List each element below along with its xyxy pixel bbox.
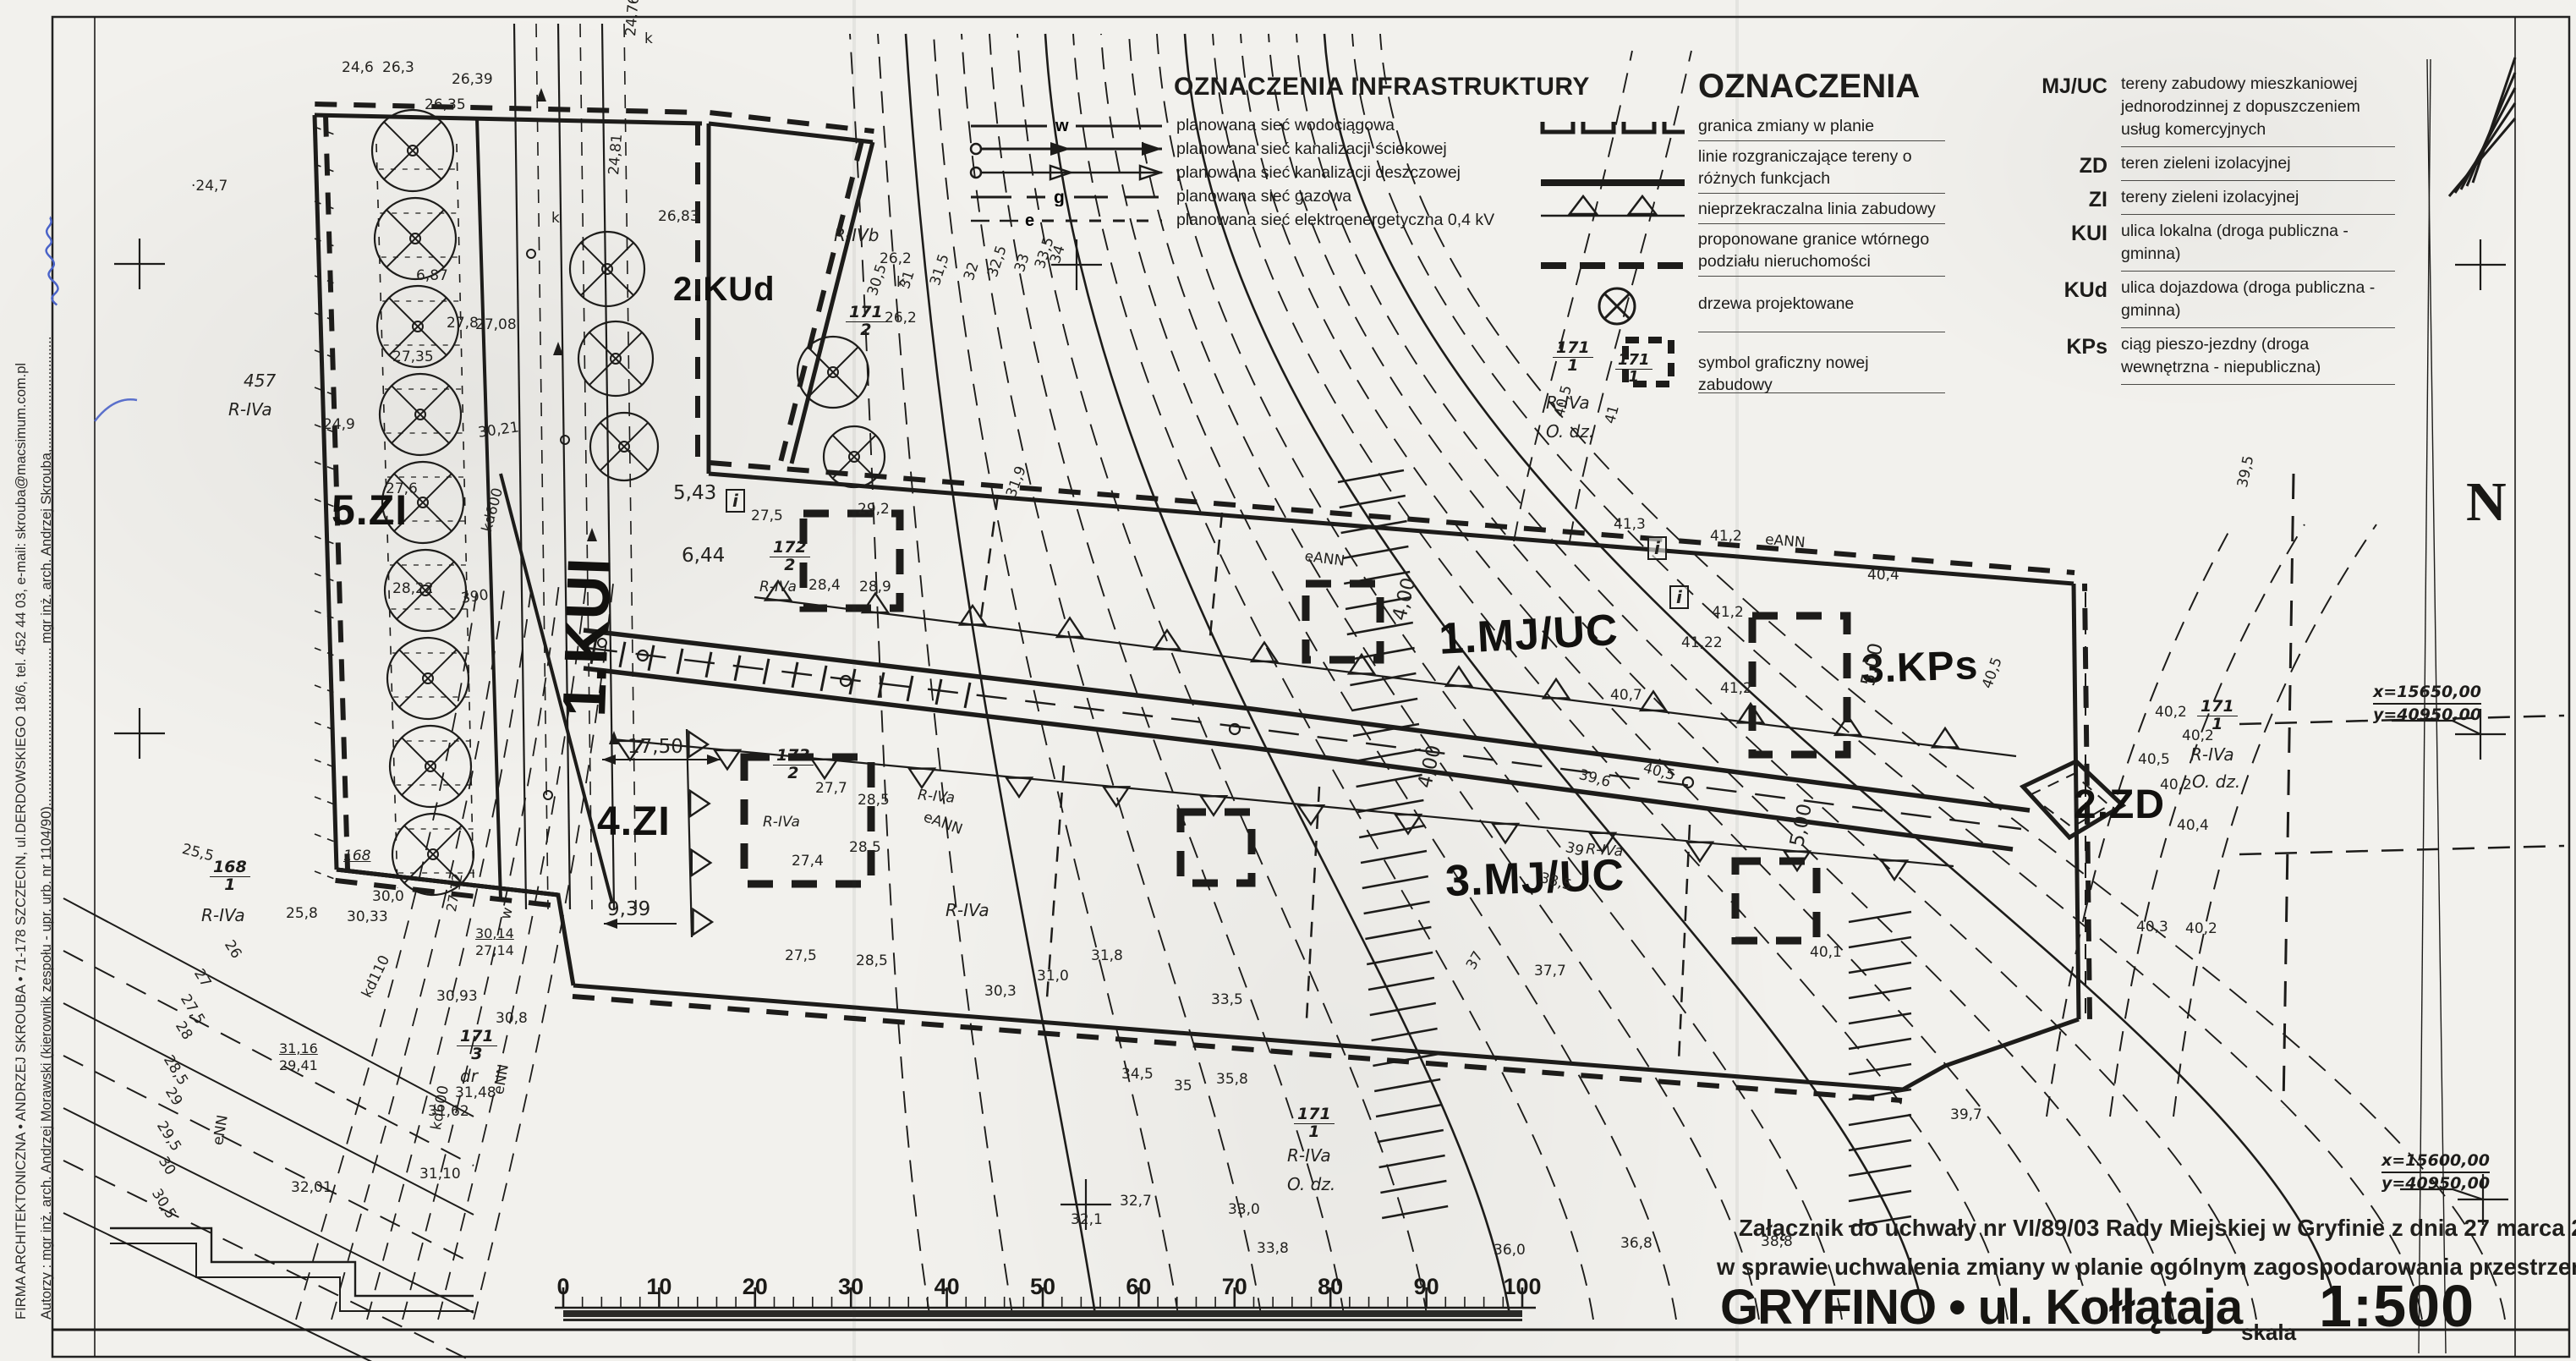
map-annotation: 28,4 — [808, 577, 841, 594]
map-annotation: 30,3 — [984, 983, 1017, 1000]
map-annotation: 40,5 — [2138, 751, 2170, 768]
legend-designations-title: OZNACZENIA — [1698, 68, 1954, 106]
map-annotation: k — [896, 274, 905, 291]
zone-code: KUI — [2026, 215, 2121, 272]
map-annotation: 33,8 — [1257, 1240, 1289, 1257]
legend-label: planowana sieć gazowa — [1168, 187, 1351, 206]
map-annotation: 32,01 — [291, 1179, 332, 1196]
map-annotation: 40,2 — [2160, 777, 2192, 793]
scale-bar-number: 30 — [838, 1274, 863, 1300]
map-annotation: 26,35 — [425, 96, 466, 113]
map-annotation: R-IVa — [228, 399, 272, 420]
map-annotation: 25,8 — [286, 905, 318, 922]
map-annotation: 24,81 — [606, 134, 626, 176]
map-annotation: 40,2 — [2185, 920, 2217, 937]
map-annotation: O. dz. — [2192, 771, 2240, 792]
map-annotation: 27,7 — [815, 780, 847, 797]
map-annotation: 33,0 — [1228, 1201, 1260, 1218]
scale-bar-number: 20 — [743, 1274, 768, 1300]
zone-code: ZD — [2026, 147, 2121, 181]
svg-text:w: w — [1055, 117, 1069, 135]
map-annotation: eANN — [1764, 531, 1806, 552]
map-annotation: 30,93 — [436, 988, 478, 1005]
map-annotation: 26,2 — [885, 310, 917, 327]
map-annotation: R-IVa — [917, 787, 955, 807]
secondary-division-line-icon — [1539, 259, 1687, 272]
map-annotation: R-IVa — [2190, 744, 2234, 765]
legend-label: symbol graficzny nowej zabudowy — [1698, 354, 1869, 394]
map-annotation: 29,41 — [279, 1057, 318, 1073]
map-annotation: k — [551, 210, 560, 227]
electric-line-icon: e — [969, 210, 1168, 230]
north-indicator: N — [2466, 470, 2507, 535]
scale-value: 1:500 — [2319, 1272, 2475, 1340]
legend-label: proponowane granice wtórnego podziału ni… — [1698, 230, 1929, 271]
map-annotation: R-IVa — [763, 814, 800, 831]
map-annotation: 35,8 — [1216, 1071, 1248, 1088]
scale-label: skala — [2241, 1320, 2296, 1346]
zone-desc: ulica dojazdowa (droga publiczna - gminn… — [2121, 272, 2395, 328]
zone-code-table: MJ/UC tereny zabudowy mieszkaniowej jedn… — [2026, 68, 2395, 385]
map-annotation: dr — [460, 1066, 478, 1086]
map-annotation: 27,6 — [386, 480, 418, 497]
scale-bar-number: 70 — [1222, 1274, 1247, 1300]
legend-label: granica zmiany w planie — [1698, 117, 1874, 135]
legend-label: linie rozgraniczające tereny o różnych f… — [1698, 147, 1912, 188]
parcel-number: 171 1 — [1615, 353, 1652, 386]
scale-bar-number: 0 — [556, 1274, 569, 1300]
parcel-number: 1712 — [846, 305, 886, 339]
map-annotation: 27,4 — [792, 853, 824, 870]
building-limit-line-icon — [1539, 191, 1687, 220]
map-annotation: R-IVa — [945, 900, 989, 920]
table-row: KUd ulica dojazdowa (droga publiczna - g… — [2026, 272, 2395, 328]
map-annotation: 40,1 — [1810, 944, 1842, 961]
map-annotation: 32,7 — [1120, 1193, 1152, 1210]
fold-crease — [852, 0, 856, 1361]
scale-bar-number: 10 — [646, 1274, 671, 1300]
zone-label-4-zi: 4.ZI — [597, 798, 671, 845]
map-annotation: 168 — [343, 848, 370, 864]
gas-line-icon: g — [969, 186, 1168, 206]
map-annotation: 31,0 — [1037, 968, 1069, 985]
map-annotation: 36,0 — [1494, 1242, 1526, 1259]
parcel-number: 1732 — [773, 748, 814, 782]
map-annotation: 30,33 — [347, 908, 388, 925]
map-annotation: 27,5 — [785, 947, 817, 964]
map-annotation: 26,83 — [658, 208, 699, 225]
scale-bar-number: 80 — [1318, 1274, 1343, 1300]
map-annotation: 41,3 — [1614, 516, 1646, 533]
map-annotation: 36,8 — [1620, 1235, 1652, 1252]
map-annotation: 41,22 — [1681, 634, 1723, 651]
map-annotation: 28,5 — [858, 792, 890, 809]
zone-label-1-mj-uc: 1.MJ/UC — [1438, 605, 1620, 665]
map-annotation: 37,7 — [1534, 963, 1566, 980]
map-annotation: 28,9 — [859, 579, 891, 595]
map-annotation: 39,7 — [1950, 1106, 1982, 1123]
map-annotation: 41,2 — [1710, 528, 1742, 545]
map-annotation: 6,44 — [682, 545, 725, 567]
map-annotation: 27,35 — [392, 348, 434, 365]
table-row: ZD teren zieleni izolacyjnej — [2026, 147, 2395, 181]
legend-label: nieprzekraczalna linia zabudowy — [1698, 200, 1936, 218]
map-annotation: i — [726, 489, 745, 513]
zone-desc: teren zieleni izolacyjnej — [2121, 147, 2395, 181]
function-boundary-line-icon — [1539, 176, 1687, 189]
zone-desc: tereny zabudowy mieszkaniowej jednorodzi… — [2121, 68, 2395, 147]
map-annotation: R-IVa — [1287, 1145, 1331, 1166]
map-annotation: 31,16 — [279, 1040, 318, 1056]
sewage-line-icon — [969, 139, 1168, 159]
zone-desc: ciąg pieszo-jezdny (droga wewnętrzna - n… — [2121, 328, 2395, 385]
scale-bar-number: 50 — [1030, 1274, 1055, 1300]
map-annotation: 24,9 — [323, 416, 355, 433]
grid-coordinate: x=15600,00y=40950,00 — [2381, 1150, 2490, 1194]
parcel-number: 1713 — [457, 1029, 497, 1063]
map-annotation: R-IVa — [759, 579, 797, 595]
map-annotation: 27,08 — [475, 316, 517, 333]
scale-bar-number: 40 — [934, 1274, 960, 1300]
zone-code: KUd — [2026, 272, 2121, 328]
map-annotation: 41,2 — [1712, 604, 1744, 621]
map-annotation: 40,7 — [1610, 687, 1642, 704]
grid-coordinate: x=15650,00y=40950,00 — [2373, 682, 2481, 725]
legend-row-new-building: 171 1 symbol graficzny nowej zabudowy — [1698, 332, 1945, 393]
scale-bar-number: 90 — [1414, 1274, 1439, 1300]
map-annotation: 26,3 — [382, 59, 414, 76]
parcel-number: 1711 — [2197, 699, 2238, 733]
legend-label: drzewa projektowane — [1698, 294, 1854, 313]
map-annotation: i — [1669, 585, 1689, 609]
attachment-line-1: Załącznik do uchwały nr VI/89/03 Rady Mi… — [1739, 1215, 2576, 1242]
map-annotation: 27,14 — [475, 942, 514, 958]
scale-bar-number: 60 — [1126, 1274, 1151, 1300]
legend-row-secondary-division: proponowane granice wtórnego podziału ni… — [1698, 224, 1945, 277]
map-annotation: 40,4 — [2177, 817, 2209, 834]
projected-tree-icon — [1539, 284, 1687, 328]
firm-credit-line: FIRMA ARCHITEKTONICZNA • ANDRZEJ SKROUBA… — [14, 363, 30, 1320]
map-annotation: 34,5 — [1121, 1066, 1154, 1083]
storm-line-icon — [969, 162, 1168, 183]
table-row: KPs ciąg pieszo-jezdny (droga wewnętrzna… — [2026, 328, 2395, 385]
map-annotation: 32,1 — [1071, 1211, 1103, 1228]
map-annotation: 27,8 — [447, 315, 479, 332]
map-annotation: 40,4 — [1867, 567, 1899, 584]
zone-code: ZI — [2026, 181, 2121, 215]
map-annotation: O. dz. — [1287, 1174, 1335, 1194]
plan-title: GRYFINO • ul. Kołłątaja — [1720, 1279, 2242, 1336]
map-annotation: k — [644, 30, 653, 47]
table-row: MJ/UC tereny zabudowy mieszkaniowej jedn… — [2026, 68, 2395, 147]
parcel-number: 1722 — [770, 540, 810, 574]
legend-designations: OZNACZENIA granica zmiany w planie linie… — [1539, 68, 1954, 393]
map-annotation: 33,5 — [1211, 991, 1243, 1008]
parcel-number: 1711 — [1294, 1106, 1335, 1141]
map-annotation: 28,5 — [849, 839, 881, 856]
map-annotation: 27,5 — [751, 508, 783, 524]
plan-sheet: FIRMA ARCHITEKTONICZNA • ANDRZEJ SKROUBA… — [0, 0, 2576, 1361]
map-annotation: 6,87 — [416, 267, 448, 284]
zone-label-2-zd: 2.ZD — [2074, 782, 2165, 828]
table-row: KUI ulica lokalna (droga publiczna - gmi… — [2026, 215, 2395, 272]
zone-code: MJ/UC — [2026, 68, 2121, 147]
map-annotation: 28,5 — [856, 952, 888, 969]
legend-row-building-line: nieprzekraczalna linia zabudowy — [1698, 194, 1945, 224]
scale-bar-number: 100 — [1503, 1274, 1541, 1300]
table-row: ZI tereny zieleni izolacyjnej — [2026, 181, 2395, 215]
map-annotation: 26,39 — [452, 71, 493, 88]
svg-text:g: g — [1054, 188, 1065, 206]
legend-label: planowana sieć wodociągowa — [1168, 116, 1395, 135]
map-annotation: O. dz. — [1546, 421, 1594, 442]
map-annotation: 9,39 — [607, 898, 650, 920]
map-annotation: R-IVb — [834, 225, 879, 245]
map-annotation: 29,2 — [858, 501, 890, 518]
map-annotation: ·24,7 — [191, 178, 227, 195]
map-annotation: R-IVa — [1586, 841, 1624, 860]
parcel-number: 1681 — [210, 859, 250, 894]
map-annotation: 41,2 — [1720, 680, 1752, 697]
zone-desc: tereny zieleni izolacyjnej — [2121, 181, 2395, 215]
map-annotation: 30,14 — [475, 925, 514, 941]
map-annotation: 40,2 — [2155, 704, 2187, 721]
legend-row-trees: drzewa projektowane — [1698, 277, 1945, 332]
map-annotation: 35 — [1174, 1078, 1192, 1095]
map-annotation: 17,50 — [628, 736, 683, 758]
authors-line: Autorzy : mgr inż. arch. Andrzej Morawsk… — [39, 337, 55, 1320]
zone-desc: ulica lokalna (droga publiczna - gminna) — [2121, 215, 2395, 272]
zone-label-1-kui: 1.KUI — [550, 556, 625, 718]
zone-label-2-kud: 2.KUd — [673, 271, 776, 309]
map-annotation: R-IVa — [1546, 392, 1590, 413]
map-annotation: 30,8 — [496, 1010, 528, 1027]
legend-row-boundary: granica zmiany w planie — [1698, 111, 1945, 141]
map-annotation: 30,0 — [372, 888, 404, 905]
zone-code: KPs — [2026, 328, 2121, 385]
water-line-icon: w — [969, 115, 1168, 135]
map-annotation: 24,6 — [342, 59, 374, 76]
map-annotation: i — [1647, 536, 1667, 560]
map-annotation: 31,10 — [419, 1166, 461, 1183]
map-annotation: 457 — [244, 370, 276, 391]
map-annotation: 5,43 — [673, 482, 716, 504]
map-annotation: 40,3 — [2136, 919, 2168, 936]
map-annotation: 31,8 — [1091, 947, 1123, 964]
legend-label: planowana sieć kanalizacji deszczowej — [1168, 163, 1461, 183]
map-annotation: R-IVa — [201, 905, 245, 925]
svg-text:e: e — [1025, 211, 1034, 230]
plan-change-boundary-icon — [1539, 118, 1687, 137]
legend-label: planowana sieć elektroenergetyczna 0,4 k… — [1168, 211, 1494, 230]
map-annotation: 28,22 — [392, 580, 434, 597]
legend-row-function-lines: linie rozgraniczające tereny o różnych f… — [1698, 141, 1945, 194]
legend-label: planowana sieć kanalizacji ściekowej — [1168, 140, 1447, 159]
parcel-number: 1711 — [1553, 340, 1593, 375]
